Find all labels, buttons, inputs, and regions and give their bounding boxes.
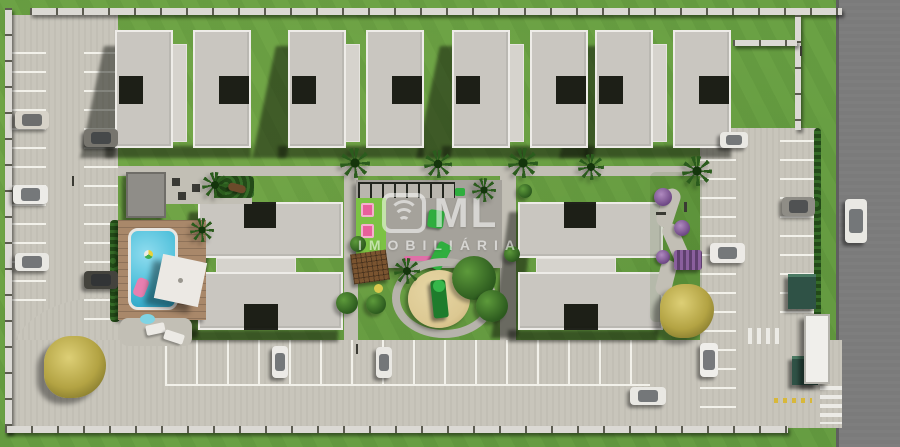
roof-notch <box>292 76 316 104</box>
building-shadow <box>508 330 658 342</box>
car <box>272 346 288 378</box>
kiddie-pool <box>140 314 155 324</box>
car-suv <box>782 197 815 216</box>
patio-table <box>178 192 186 200</box>
garden-trellis <box>674 250 702 270</box>
car <box>376 347 392 378</box>
perimeter-wall-top <box>30 8 842 15</box>
bbq-kiosk-roof <box>126 172 166 218</box>
slide-top <box>433 280 445 292</box>
shrub <box>476 290 508 322</box>
garden-bench <box>684 202 687 212</box>
roof-notch <box>244 202 276 228</box>
shrub <box>366 294 386 314</box>
watermark: ML IMOBILIÁRIA <box>330 192 550 253</box>
wall-segment-top-right <box>733 40 797 46</box>
logo-arc <box>398 216 410 228</box>
roof-notch <box>599 76 623 104</box>
roof-notch <box>699 76 729 104</box>
car <box>700 343 718 377</box>
gate-canopy <box>788 274 816 309</box>
car <box>15 111 49 129</box>
roof-notch <box>564 304 598 330</box>
roof-notch <box>219 76 249 104</box>
street-lamp <box>72 176 74 186</box>
car <box>710 243 745 263</box>
roof-notch <box>456 76 480 104</box>
car <box>15 253 49 271</box>
car-driving <box>630 387 666 405</box>
patio-table <box>192 184 200 192</box>
palm-tree <box>340 148 370 178</box>
patio-table <box>172 178 180 186</box>
garden-bench <box>656 212 666 215</box>
aerial-render-scene: ML IMOBILIÁRIA <box>0 0 900 447</box>
watermark-subtitle: IMOBILIÁRIA <box>330 237 550 253</box>
gatehouse <box>804 314 830 384</box>
palm-tree <box>682 156 712 186</box>
car <box>720 132 748 148</box>
palm-tree <box>190 218 214 242</box>
street-lamp <box>356 344 358 354</box>
perimeter-wall-left <box>5 8 12 433</box>
palm-tree <box>508 148 538 178</box>
car <box>84 271 118 289</box>
stall-end-line <box>165 384 650 386</box>
palm-tree <box>202 172 228 198</box>
perimeter-wall-right-top <box>795 15 801 130</box>
parking-stalls-bottom-row <box>165 340 650 385</box>
palm-tree <box>424 150 452 178</box>
flowering-tree <box>654 188 672 206</box>
crosswalk-street <box>820 386 842 424</box>
building-shadow <box>188 330 338 342</box>
beach-ball <box>144 250 153 259</box>
roof-notch <box>392 76 422 104</box>
shrub <box>336 292 358 314</box>
ml-logo-icon <box>382 193 426 233</box>
umbrella-pole <box>178 278 183 283</box>
roof-notch <box>244 304 278 330</box>
street-lamp <box>800 46 802 56</box>
crosswalk-internal <box>748 328 780 344</box>
palm-tree <box>578 154 604 180</box>
roof-notch <box>564 202 596 228</box>
flower-bush <box>374 284 383 293</box>
yellow-dashed-line <box>774 398 812 403</box>
perimeter-wall-bottom <box>5 426 788 433</box>
car <box>13 185 48 204</box>
palm-tree <box>394 258 420 284</box>
flowering-tree <box>656 250 670 264</box>
watermark-brand: ML <box>434 192 499 234</box>
car <box>84 129 118 147</box>
car-on-street <box>845 199 867 243</box>
roof-notch <box>556 76 586 104</box>
roof-notch <box>119 76 143 104</box>
watermark-logo-row: ML <box>330 192 550 234</box>
wooden-climbing-frame <box>350 250 390 285</box>
flowering-tree <box>674 220 690 236</box>
